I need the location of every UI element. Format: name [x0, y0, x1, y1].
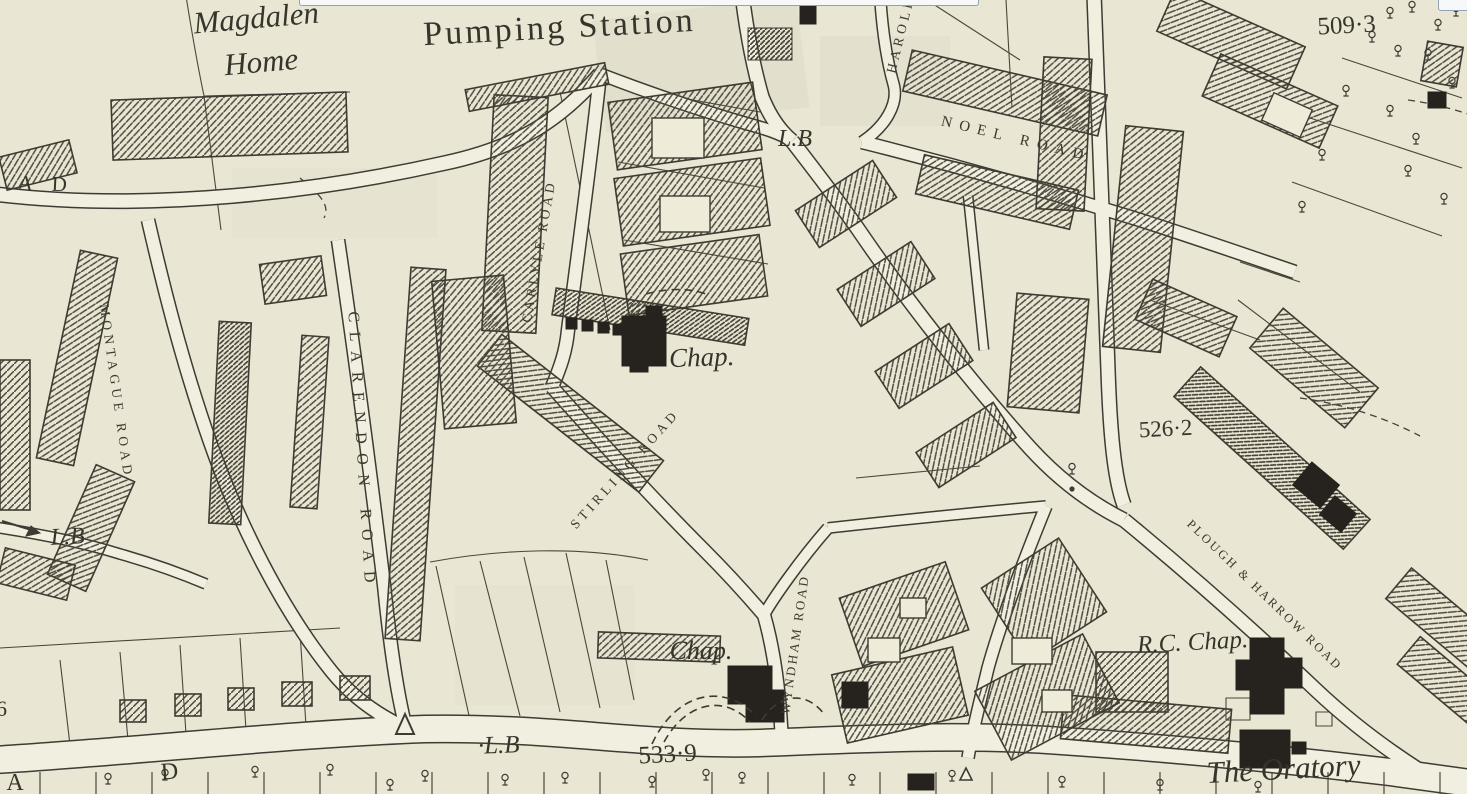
- chapel-label-north: Chap.: [669, 341, 735, 373]
- spot-height-526: 526·2: [1138, 415, 1193, 443]
- road-letter-a-top: A: [17, 170, 35, 195]
- lb-dot: [1069, 486, 1074, 491]
- chapel-north-building: [622, 306, 666, 372]
- spot-height-509: 509·3: [1317, 11, 1377, 41]
- lb-label-top: L.B: [777, 126, 812, 152]
- road-letter-d-bottom: D: [160, 758, 179, 785]
- viewer-control-fragment[interactable]: [1438, 0, 1467, 11]
- spot-height-533: 533·9: [638, 740, 698, 770]
- map-canvas[interactable]: Magdalen Home Pumping Station L.B HAROLD…: [0, 0, 1467, 794]
- edge-fragment-6: 6: [0, 696, 7, 721]
- chapel-label-south: Chap.: [670, 636, 733, 665]
- place-label-home: Home: [222, 41, 300, 82]
- road-letter-d-top: D: [51, 172, 67, 197]
- lb-label-west: L.B: [49, 523, 86, 551]
- lb-label-south: ·L.B: [477, 731, 520, 759]
- viewer-overlay-fragment[interactable]: [299, 0, 979, 6]
- historical-os-map[interactable]: Magdalen Home Pumping Station L.B HAROLD…: [0, 0, 1467, 794]
- road-letter-a-bottom: A: [6, 770, 24, 794]
